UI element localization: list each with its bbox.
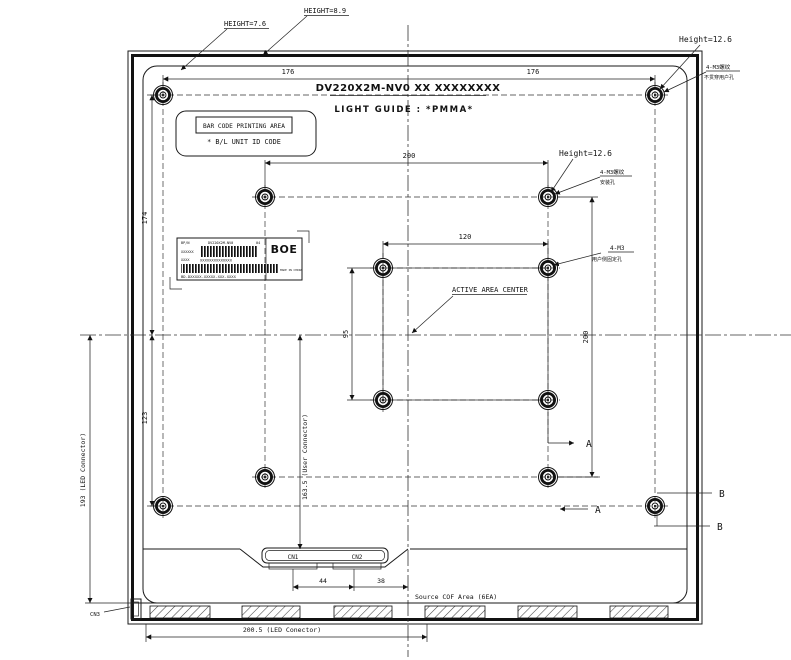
label-part: DV220X2M-NV0 <box>208 241 233 245</box>
mounting-hole <box>539 259 558 278</box>
section-a2-label: A <box>595 505 601 516</box>
dim-44: 44 <box>319 577 327 585</box>
dim-200-top: 200 <box>403 152 416 160</box>
dim-120: 120 <box>459 233 472 241</box>
cn2-label: CN2 <box>352 554 363 561</box>
mounting-hole <box>646 86 665 105</box>
cn1-pins <box>269 563 317 569</box>
cof-boxes <box>150 606 668 618</box>
callout-height-12-6-corner: Height=12.6 <box>679 35 732 44</box>
panel-outline <box>128 51 702 624</box>
label-field1: BP/N <box>181 241 189 245</box>
cn3-connector-inner <box>134 602 139 616</box>
boe-logo: BOE <box>271 243 298 256</box>
callout-corner-screw-2: 不贯穿用户孔 <box>704 74 734 81</box>
dim-123: 123 <box>141 412 149 425</box>
material-note: LIGHT GUIDE : *PMMA* <box>334 105 473 115</box>
section-b2-label: B <box>717 522 723 533</box>
mounting-hole <box>539 188 558 207</box>
mounting-hole <box>374 391 393 410</box>
barcode-area-subtitle: * B/L UNIT ID CODE <box>207 138 281 146</box>
id-label: BP/N DV220X2M-NV0 04 XXXXXX XXXX XXXXXXX… <box>170 231 309 289</box>
callout-inner-screw-1: 4-M3螺纹 <box>600 168 625 176</box>
section-a1-label: A <box>586 439 592 450</box>
mounting-hole <box>256 468 275 487</box>
source-cof-note: Source COF Area (6EA) <box>415 593 497 601</box>
barcode-2 <box>181 264 279 273</box>
dim-163-5: 163.5 (User Connector) <box>301 414 309 500</box>
label-serial2: XXXX <box>181 258 190 262</box>
cn3-label: CN3 <box>90 612 100 618</box>
callout-user-screw-1: 4-M3 <box>610 245 625 252</box>
barcode-1 <box>200 246 258 257</box>
label-digits: XXXXXXXXXXXXXX <box>200 258 233 263</box>
callout-height-8-9: HEIGHT=8.9 <box>304 7 346 15</box>
dim-95: 95 <box>342 330 350 338</box>
cn1-label: CN1 <box>288 554 299 561</box>
callout-corner-screw-1: 4-M3螺纹 <box>706 63 731 71</box>
callout-user-screw-2: 用户侧固定孔 <box>592 256 622 263</box>
dim-200-right: 200 <box>582 331 590 344</box>
cof-area-block <box>518 606 577 618</box>
barcode-area-title: BAR CODE PRINTING AREA <box>203 123 285 130</box>
drawing-canvas: DV220X2M-NV0 XX XXXXXXXX LIGHT GUIDE : *… <box>0 0 791 660</box>
dim-200-5: 200.5 (LED Conector) <box>243 626 321 634</box>
construction-lines <box>150 82 668 518</box>
centerlines <box>80 25 791 657</box>
barcode-printing-area: BAR CODE PRINTING AREA * B/L UNIT ID COD… <box>176 111 316 156</box>
label-code: BD-DXXXXX-XXXXX-XXX-XXXX <box>181 274 237 279</box>
section-b1-label: B <box>719 489 725 500</box>
cof-area-block <box>425 606 485 618</box>
cn2-pins <box>333 563 381 569</box>
callout-inner-screw-2: 安装孔 <box>600 179 615 186</box>
mounting-hole <box>256 188 275 207</box>
cof-area-block <box>610 606 668 618</box>
callout-active-area-center: ACTIVE AREA CENTER <box>452 286 529 294</box>
cof-area-block <box>242 606 300 618</box>
callout-height-7-6: HEIGHT=7.6 <box>224 20 266 28</box>
part-number: DV220X2M-NV0 XX XXXXXXXX <box>316 83 501 94</box>
dim-176-left: 176 <box>282 68 295 76</box>
label-rev: 04 <box>256 241 260 245</box>
mounting-hole <box>374 259 393 278</box>
cof-area-block <box>334 606 392 618</box>
dim-193: 193 (LED Connector) <box>79 433 87 507</box>
mounting-hole <box>646 497 665 516</box>
mounting-hole <box>539 468 558 487</box>
engineering-drawing: DV220X2M-NV0 XX XXXXXXXX LIGHT GUIDE : *… <box>0 0 791 660</box>
cof-area-block <box>150 606 210 618</box>
dim-174: 174 <box>141 212 149 225</box>
title-block: DV220X2M-NV0 XX XXXXXXXX LIGHT GUIDE : *… <box>316 83 501 115</box>
cof-strip: Source COF Area (6EA) <box>133 593 697 618</box>
label-corner-mark-tr <box>297 231 309 243</box>
callout-height-12-6-inner: Height=12.6 <box>559 149 612 158</box>
label-origin: MADE IN CHINA <box>280 268 302 272</box>
mounting-hole <box>539 391 558 410</box>
dim-38: 38 <box>377 577 385 585</box>
dim-176-right: 176 <box>527 68 540 76</box>
label-serial: XXXXXX <box>181 250 195 254</box>
